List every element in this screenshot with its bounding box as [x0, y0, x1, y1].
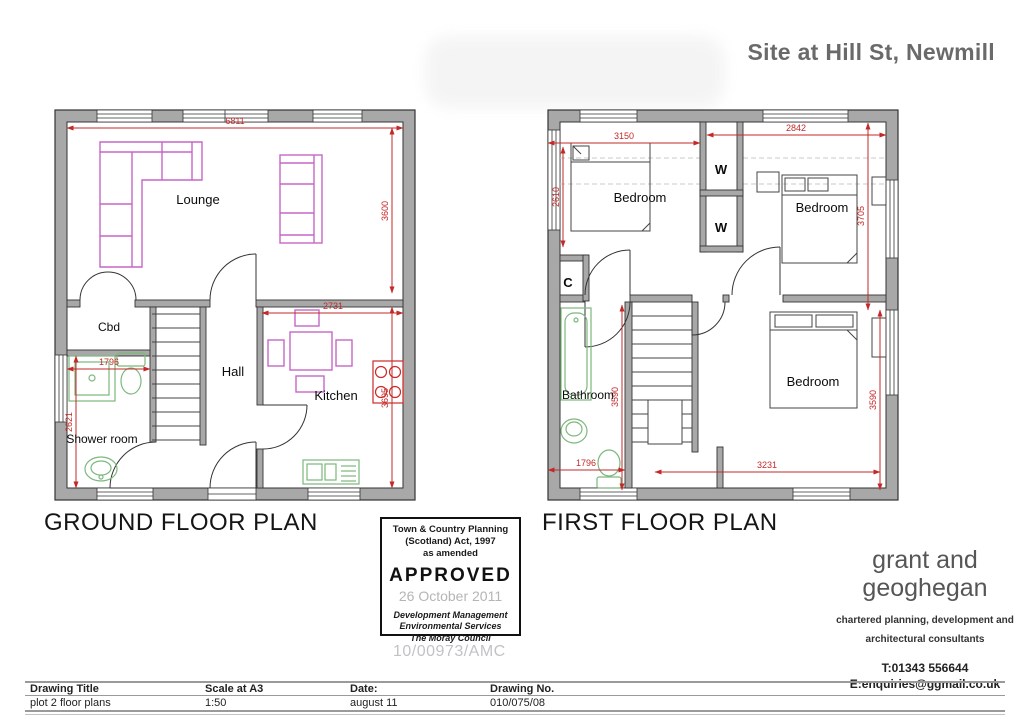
dim-bedroom3-width: 3231 [757, 460, 777, 470]
tb-header-scale: Scale at A3 [205, 683, 263, 695]
stamp-dept-line1: Development Management [382, 610, 519, 622]
dim-bathroom-width: 1796 [576, 458, 596, 468]
stamp-act-line3: as amended [382, 548, 519, 560]
title-block-mid-rule [25, 695, 1005, 696]
dim-kitchen-depth: 3695 [380, 388, 390, 408]
first-floor-plan-drawing: 3150 2842 2610 3705 3590 3590 1796 3231 … [535, 100, 915, 510]
tb-header-date: Date: [350, 683, 378, 695]
title-block-bottom-rule [25, 710, 1005, 712]
room-label-cupboard: C [563, 275, 573, 290]
room-label-shower-room: Shower room [66, 432, 137, 446]
scan-artifact [425, 36, 725, 108]
firm-email: E:enquiries@ggmail.co.uk [830, 676, 1020, 692]
dim-kitchen-width: 2731 [323, 301, 343, 311]
firm-tagline-line1: chartered planning, development and [830, 611, 1020, 630]
first-floor-caption: FIRST FLOOR PLAN [542, 509, 778, 537]
approval-stamp: Town & Country Planning (Scotland) Act, … [380, 517, 521, 636]
room-label-bedroom3: Bedroom [787, 374, 840, 389]
room-label-lounge: Lounge [176, 192, 219, 207]
tb-value-scale: 1:50 [205, 697, 226, 709]
dim-shower-width: 1796 [99, 357, 119, 367]
room-label-cbd: Cbd [98, 320, 120, 334]
firm-name-line1: grant and [830, 546, 1020, 574]
stamp-date: 26 October 2011 [382, 588, 519, 604]
tb-value-date: august 11 [350, 697, 398, 709]
dim-bedroom2-width: 2842 [786, 123, 806, 133]
stamp-status: APPROVED [382, 565, 519, 587]
dim-bedroom1-depth: 2610 [551, 187, 561, 207]
ground-floor-caption: GROUND FLOOR PLAN [44, 509, 318, 537]
firm-block: grant and geoghegan chartered planning, … [830, 546, 1020, 692]
room-label-wardrobe2: W [715, 220, 728, 235]
stamp-act-line2: (Scotland) Act, 1997 [382, 536, 519, 548]
room-label-bedroom2: Bedroom [796, 200, 849, 215]
dim-bedroom3-depth: 3590 [868, 390, 878, 410]
firm-name-line2: geoghegan [830, 574, 1020, 602]
tb-header-drawing-no: Drawing No. [490, 683, 554, 695]
tb-header-drawing-title: Drawing Title [30, 683, 99, 695]
dim-overall-width: 6811 [225, 116, 244, 126]
dim-lounge-depth: 3600 [380, 201, 390, 221]
room-label-bedroom1: Bedroom [614, 190, 667, 205]
firm-phone: T:01343 556644 [830, 660, 1020, 676]
room-label-hall: Hall [222, 364, 245, 379]
drawing-sheet: { "header": { "site_title": "Site at Hil… [0, 0, 1024, 724]
firm-tagline-line2: architectural consultants [830, 630, 1020, 649]
room-label-kitchen: Kitchen [314, 388, 357, 403]
application-number-watermark: 10/00973/AMC [393, 643, 506, 661]
tb-value-drawing-title: plot 2 floor plans [30, 697, 111, 709]
stamp-act-line1: Town & Country Planning [382, 524, 519, 536]
stamp-dept-line2: Environmental Services [382, 621, 519, 633]
dim-shower-depth: 2621 [64, 412, 74, 432]
tb-value-drawing-no: 010/075/08 [490, 697, 545, 709]
dim-bedroom1-width: 3150 [614, 131, 634, 141]
dim-bedroom2-depth: 3705 [856, 206, 866, 226]
sheet-title: Site at Hill St, Newmill [748, 39, 995, 66]
room-label-wardrobe1: W [715, 162, 728, 177]
title-block-bottom-rule2 [25, 714, 1005, 715]
ground-floor-plan-drawing: 6811 3600 3695 2731 1796 2621 Lounge Cbd… [40, 100, 430, 510]
room-label-bathroom: Bathroom [562, 388, 614, 402]
